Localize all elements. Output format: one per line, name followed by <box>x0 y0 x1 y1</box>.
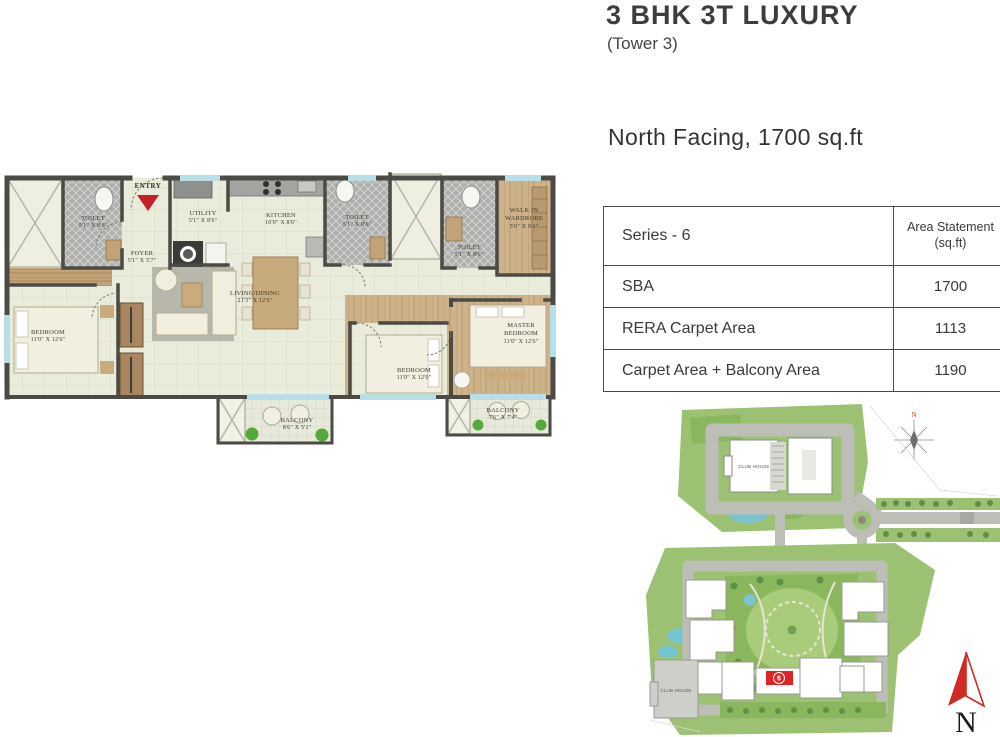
room-label-toilet3: TOILET 5'1" X 8'6" <box>434 244 504 260</box>
entry-label: ENTRY <box>118 182 178 190</box>
room-name: BEDROOM <box>379 367 449 375</box>
room-name: TOILET <box>434 244 504 252</box>
room-dims: 5'1" X 8'6" <box>434 252 504 260</box>
room-name: UTILITY <box>168 210 238 218</box>
room-label-foyer: FOYER 5'1" X 5'7" <box>107 250 177 266</box>
room-name: MASTER BEDROOM <box>491 322 551 339</box>
room-label-kitchen: KITCHEN 10'0" X 8'6" <box>246 212 316 228</box>
rose-north-label: N <box>911 411 916 419</box>
table-header-row: Series - 6 Area Statement (sq.ft) <box>604 207 1000 266</box>
page-title: 3 BHK 3T LUXURY <box>606 0 859 31</box>
flat-brochure-page: 3 BHK 3T LUXURY (Tower 3) North Facing, … <box>0 0 1000 737</box>
room-dims: 5'0" X 9'1" <box>494 224 554 232</box>
room-dims: 7'6" X 7'4" <box>468 415 538 423</box>
row-label: Carpet Area + Balcony Area <box>604 350 894 392</box>
table-row: SBA 1700 <box>604 266 1000 308</box>
bed-bedroom2 <box>366 335 442 393</box>
club-house-bottom-label: CLUB HOUSE <box>660 688 691 693</box>
area-statement-table: Series - 6 Area Statement (sq.ft) SBA 17… <box>603 206 1000 392</box>
room-label-toilet2: TOILET 5'1" X 8'6" <box>322 214 392 230</box>
room-dims: 5'1" X 8'6" <box>168 218 238 226</box>
row-value: 1113 <box>894 308 1000 350</box>
room-dims: 8'6" X 5'1" <box>262 425 332 433</box>
room-dims: 11'0" X 12'6" <box>491 339 551 347</box>
table-row: RERA Carpet Area 1113 <box>604 308 1000 350</box>
compass-rose-icon: N <box>894 411 934 460</box>
site-top-cluster: CLUB HOUSE <box>678 404 868 532</box>
room-dims: 11'0" X 12'0" <box>379 375 449 383</box>
room-name: BALCONY <box>262 417 332 425</box>
floor-plan: ENTRY TOILET 5'1" X 8'6" FOYER 5'1" X 5'… <box>0 165 560 450</box>
plant-icon <box>246 428 259 441</box>
north-arrow-icon: N <box>932 648 1000 737</box>
room-label-master-bedroom: MASTER BEDROOM 11'0" X 12'6" <box>491 322 551 347</box>
room-name: FOYER <box>107 250 177 258</box>
facing-area-line: North Facing, 1700 sq.ft <box>608 124 863 151</box>
room-name: KITCHEN <box>246 212 316 220</box>
highlighted-unit-marker: 6 <box>766 671 793 685</box>
row-label: SBA <box>604 266 894 308</box>
tower-subtitle: (Tower 3) <box>607 34 678 54</box>
room-label-bedroom2: BEDROOM 11'0" X 12'0" <box>379 367 449 383</box>
room-name: BALCONY <box>468 407 538 415</box>
room-dims: 11'0" X 12'6" <box>13 337 83 345</box>
club-house-top-label: CLUB HOUSE <box>738 464 769 469</box>
series-label: Series - 6 <box>604 207 894 266</box>
room-dims: 10'0" X 8'6" <box>246 220 316 228</box>
area-column-header: Area Statement (sq.ft) <box>894 207 1000 266</box>
north-compass: N <box>932 648 1000 737</box>
unit-number: 6 <box>777 676 781 683</box>
room-name: TOILET <box>322 214 392 222</box>
room-name: BEDROOM <box>13 329 83 337</box>
room-dims: 5'1" X 8'6" <box>58 223 128 231</box>
room-label-walkin-wardrobe: WALK IN WARDROBE 5'0" X 9'1" <box>494 207 554 232</box>
room-dims: 5'1" X 8'6" <box>322 222 392 230</box>
room-name: LIVING/DINING <box>215 290 295 298</box>
room-label-living-dining: LIVING/DINING 21'3" X 12'6" <box>215 290 295 306</box>
room-label-balcony2: BALCONY 7'6" X 7'4" <box>468 407 538 423</box>
table-row: Carpet Area + Balcony Area 1190 <box>604 350 1000 392</box>
row-value: 1190 <box>894 350 1000 392</box>
row-value: 1700 <box>894 266 1000 308</box>
row-label: RERA Carpet Area <box>604 308 894 350</box>
room-label-bedroom1: BEDROOM 11'0" X 12'6" <box>13 329 83 345</box>
club-house-bottom: CLUB HOUSE <box>650 660 698 718</box>
room-name: TOILET <box>58 215 128 223</box>
room-label-utility: UTILITY 5'1" X 8'6" <box>168 210 238 226</box>
room-label-balcony1: BALCONY 8'6" X 5'1" <box>262 417 332 433</box>
room-dims: 21'3" X 12'6" <box>215 298 295 306</box>
room-label-toilet1: TOILET 5'1" X 8'6" <box>58 215 128 231</box>
compass-north-label: N <box>955 706 977 737</box>
room-dims: 5'1" X 5'7" <box>107 258 177 266</box>
room-name: WALK IN WARDROBE <box>494 207 554 224</box>
area-column-header-text: Area Statement (sq.ft) <box>895 220 1000 251</box>
